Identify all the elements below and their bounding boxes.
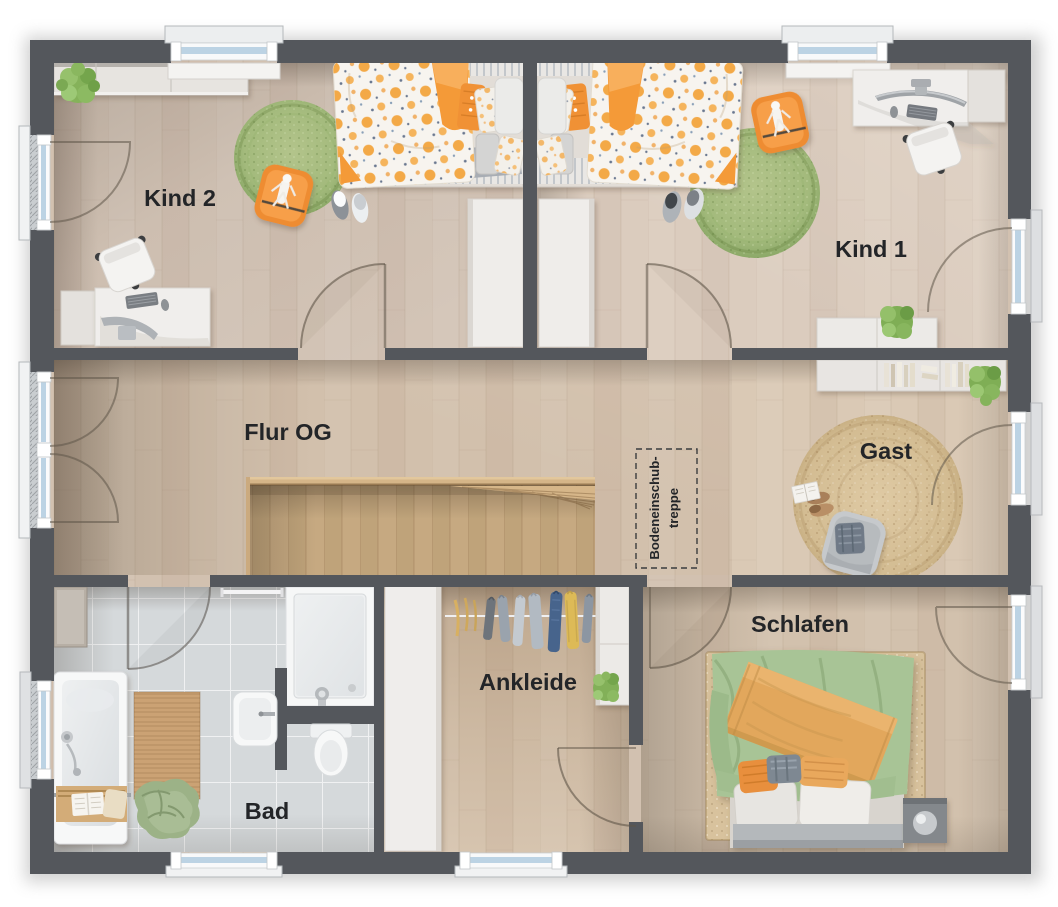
svg-text:Gast: Gast	[860, 438, 912, 464]
svg-text:treppe: treppe	[666, 488, 681, 528]
svg-text:Bad: Bad	[245, 798, 289, 824]
svg-text:Bodeneinschub-: Bodeneinschub-	[647, 456, 662, 559]
svg-text:Kind 1: Kind 1	[835, 236, 907, 262]
svg-text:Schlafen: Schlafen	[751, 611, 849, 637]
svg-text:Kind 2: Kind 2	[144, 185, 216, 211]
svg-text:Ankleide: Ankleide	[479, 669, 577, 695]
svg-text:Flur OG: Flur OG	[244, 419, 331, 445]
